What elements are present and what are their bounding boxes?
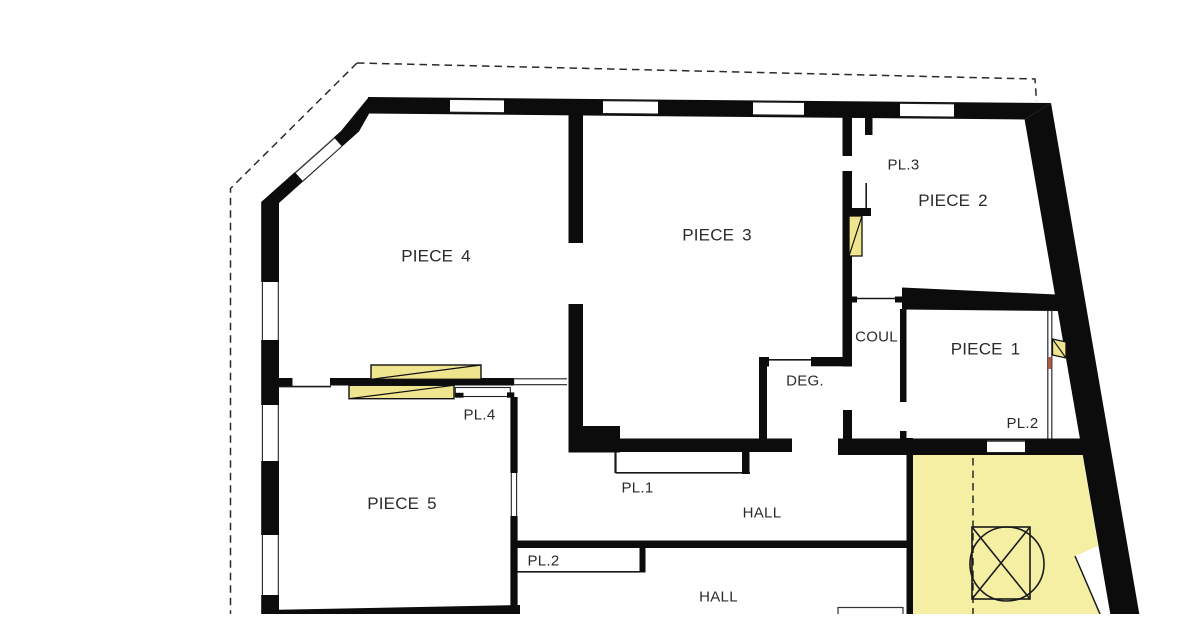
svg-text:PIECE 5: PIECE 5 — [367, 494, 437, 513]
svg-text:PL.4: PL.4 — [463, 407, 495, 424]
svg-text:PIECE 2: PIECE 2 — [918, 191, 988, 210]
svg-text:PL.2: PL.2 — [527, 553, 559, 570]
svg-text:PL.1: PL.1 — [621, 480, 653, 497]
svg-text:PIECE 4: PIECE 4 — [401, 247, 471, 266]
svg-text:HALL: HALL — [699, 589, 738, 606]
svg-text:HALL: HALL — [743, 505, 782, 522]
svg-text:PL.2: PL.2 — [1006, 415, 1038, 432]
svg-text:PIECE 3: PIECE 3 — [682, 226, 752, 245]
svg-text:DEG.: DEG. — [786, 373, 824, 390]
svg-text:PIECE 1: PIECE 1 — [951, 340, 1021, 359]
svg-text:PL.3: PL.3 — [887, 157, 919, 174]
svg-text:COUL: COUL — [855, 329, 898, 346]
